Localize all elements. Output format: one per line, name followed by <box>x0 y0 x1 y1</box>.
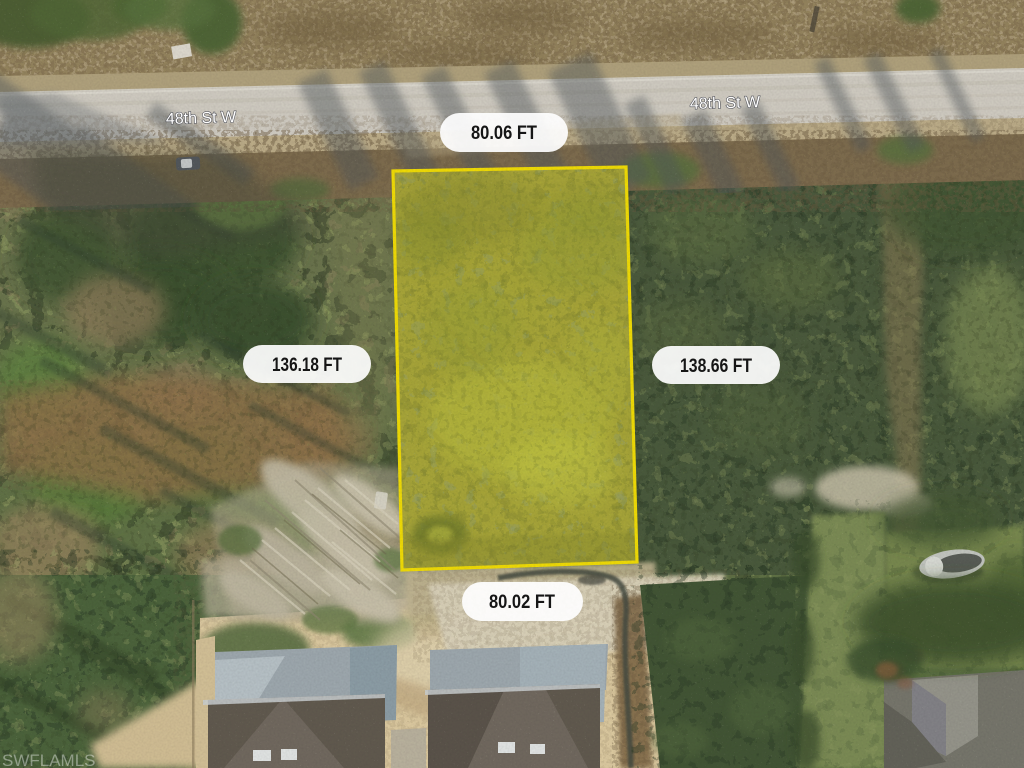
svg-text:48th St W: 48th St W <box>166 109 238 128</box>
svg-text:80.06 FT: 80.06 FT <box>471 122 537 144</box>
svg-text:136.18 FT: 136.18 FT <box>272 354 342 376</box>
svg-text:80.02 FT: 80.02 FT <box>489 591 555 613</box>
svg-text:SWFLAMLS: SWFLAMLS <box>2 751 96 768</box>
svg-text:48th St W: 48th St W <box>690 94 762 113</box>
svg-text:138.66 FT: 138.66 FT <box>680 355 752 377</box>
